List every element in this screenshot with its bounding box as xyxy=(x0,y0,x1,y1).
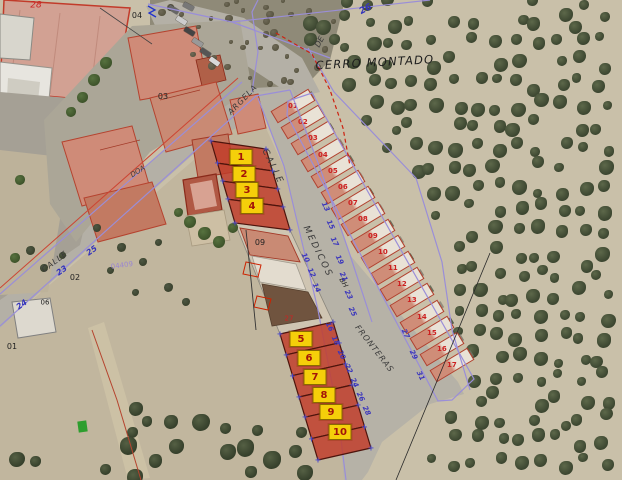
street-number-label: 13 xyxy=(320,201,331,213)
boundary-cross-icon: + xyxy=(336,338,343,347)
boundary-cross-icon: + xyxy=(289,371,296,380)
boundary-cross-icon: + xyxy=(296,393,303,402)
street-number-label: 25 xyxy=(347,306,358,318)
street-number-label: 28 xyxy=(361,405,372,417)
boundary-cross-icon: + xyxy=(269,166,276,175)
street-number-label: 23 xyxy=(342,289,353,301)
boundary-cross-icon: + xyxy=(208,137,215,146)
plot-number-badge: 1 xyxy=(230,149,253,165)
boundary-cross-icon: + xyxy=(232,219,239,228)
parcel-number-label: 04 xyxy=(132,12,142,20)
boundary-cross-icon: + xyxy=(349,381,356,390)
street-number-label: 10 xyxy=(300,252,311,264)
parcel-number-label: 25 xyxy=(85,245,99,258)
street-number-label: 19 xyxy=(333,254,344,266)
parcel-number-label: 23 xyxy=(55,265,69,278)
boundary-cross-icon: + xyxy=(330,318,337,327)
plot-number-badge: 7 xyxy=(304,369,327,385)
street-number-label: 14 xyxy=(311,282,322,294)
plot-number-badge: 9 xyxy=(320,404,343,420)
street-number-label: 12 xyxy=(305,267,316,279)
parcel-number-label: 24 xyxy=(15,299,29,312)
green-marker-icon xyxy=(77,420,87,432)
boundary-cross-icon: + xyxy=(263,145,270,154)
street-number-label: 17 xyxy=(329,236,340,248)
boundary-cross-icon: + xyxy=(277,330,284,339)
plot-number-badge: 10 xyxy=(329,424,352,440)
parcel-number-label: 27 xyxy=(285,316,294,323)
cadastral-aerial-map: 0102030405060708091011121314151617 CERRO… xyxy=(0,0,622,480)
parcel-number-label: 04409 xyxy=(110,261,133,271)
boundary-cross-icon: + xyxy=(308,434,315,443)
plot-number-badge: 4 xyxy=(241,198,264,214)
boundary-cross-icon: + xyxy=(287,226,294,235)
boundary-cross-icon: + xyxy=(355,401,362,410)
parcel-number-label: 06 xyxy=(41,300,50,307)
street-name-label: FRONTERAS xyxy=(353,324,395,374)
street-number-label: 31 xyxy=(415,370,426,382)
boundary-cross-icon: + xyxy=(361,422,368,431)
plot-number-badge: 5 xyxy=(290,331,313,347)
parcel-number-label: 09 xyxy=(255,239,265,247)
boundary-cross-icon: + xyxy=(214,159,221,168)
street-number-label: 15 xyxy=(324,219,335,231)
plot-number-badge: 6 xyxy=(298,350,321,366)
street-name-label: DOA xyxy=(130,165,147,179)
boundary-cross-icon: + xyxy=(368,444,375,453)
boundary-cross-icon: + xyxy=(302,413,309,422)
plot-number-badge: 8 xyxy=(313,387,336,403)
plot-number-badge: 3 xyxy=(236,182,259,198)
plot-number-badge: 2 xyxy=(233,166,256,182)
boundary-cross-icon: + xyxy=(280,202,287,211)
street-name-label: ARGELA xyxy=(227,83,259,116)
boundary-cross-icon: + xyxy=(225,195,232,204)
boundary-cross-icon: + xyxy=(219,177,226,186)
parcel-number-label: 28 xyxy=(30,2,41,11)
area-name-label: CERRO MONTADO xyxy=(315,54,434,72)
parcel-number-label: 26 xyxy=(358,3,373,17)
boundary-cross-icon: + xyxy=(283,350,290,359)
parcel-number-label: 02 xyxy=(70,274,80,282)
street-name-label: DE xyxy=(314,35,326,49)
boundary-cross-icon: + xyxy=(274,184,281,193)
boundary-cross-icon: + xyxy=(315,456,322,465)
parcel-number-label: 01 xyxy=(7,343,17,351)
street-number-label: 29 xyxy=(407,349,418,361)
annotation-layer: CERRO MONTADO CALLEMEDICOSFRONTERASCALLE… xyxy=(0,0,622,480)
parcel-number-label: 03 xyxy=(158,93,168,101)
boundary-cross-icon: + xyxy=(342,359,349,368)
street-number-label: 27 xyxy=(400,328,411,340)
